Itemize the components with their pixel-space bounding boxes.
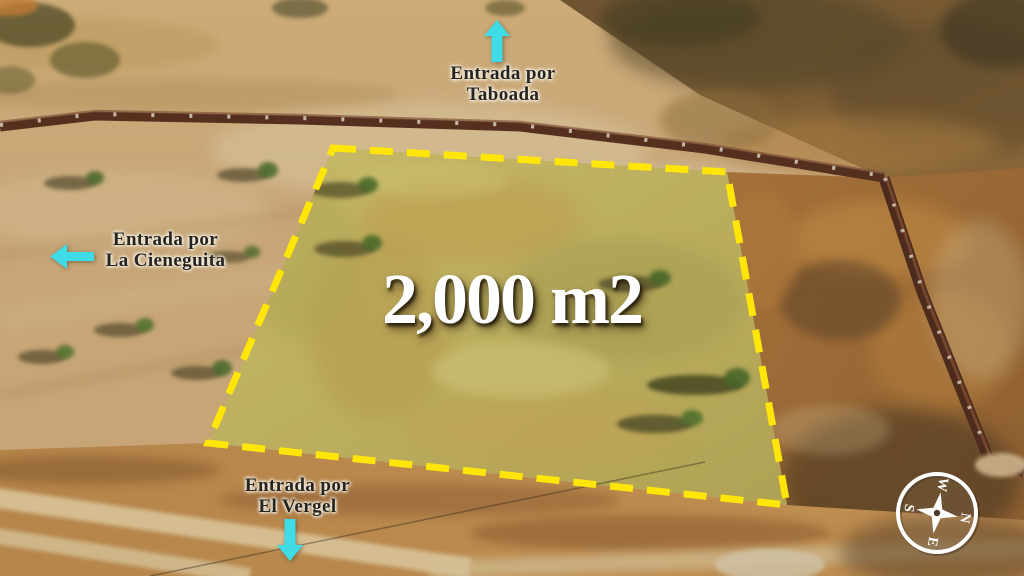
area-size-label: 2,000 m2 (332, 258, 692, 341)
entrance-label-cieneguita: Entrada por La Cieneguita (68, 229, 263, 271)
entrance-label-vergel: Entrada por El Vergel (205, 475, 390, 517)
arrow-up-icon (484, 20, 510, 62)
entrance-label-taboada: Entrada por Taboada (408, 63, 598, 105)
aerial-photo-stage: N E S W Entrada por Taboada Entrada por … (0, 0, 1024, 576)
arrow-down-icon (277, 519, 303, 561)
entrance-label-taboada-line1: Entrada por (408, 63, 598, 84)
compass-letter-w: W (933, 476, 950, 492)
entrance-label-taboada-line2: Taboada (408, 84, 598, 105)
entrance-label-vergel-line1: Entrada por (205, 475, 390, 496)
entrance-label-cieneguita-line2: La Cieneguita (68, 250, 263, 271)
entrance-label-cieneguita-line1: Entrada por (68, 229, 263, 250)
entrance-label-vergel-line2: El Vergel (205, 496, 390, 517)
